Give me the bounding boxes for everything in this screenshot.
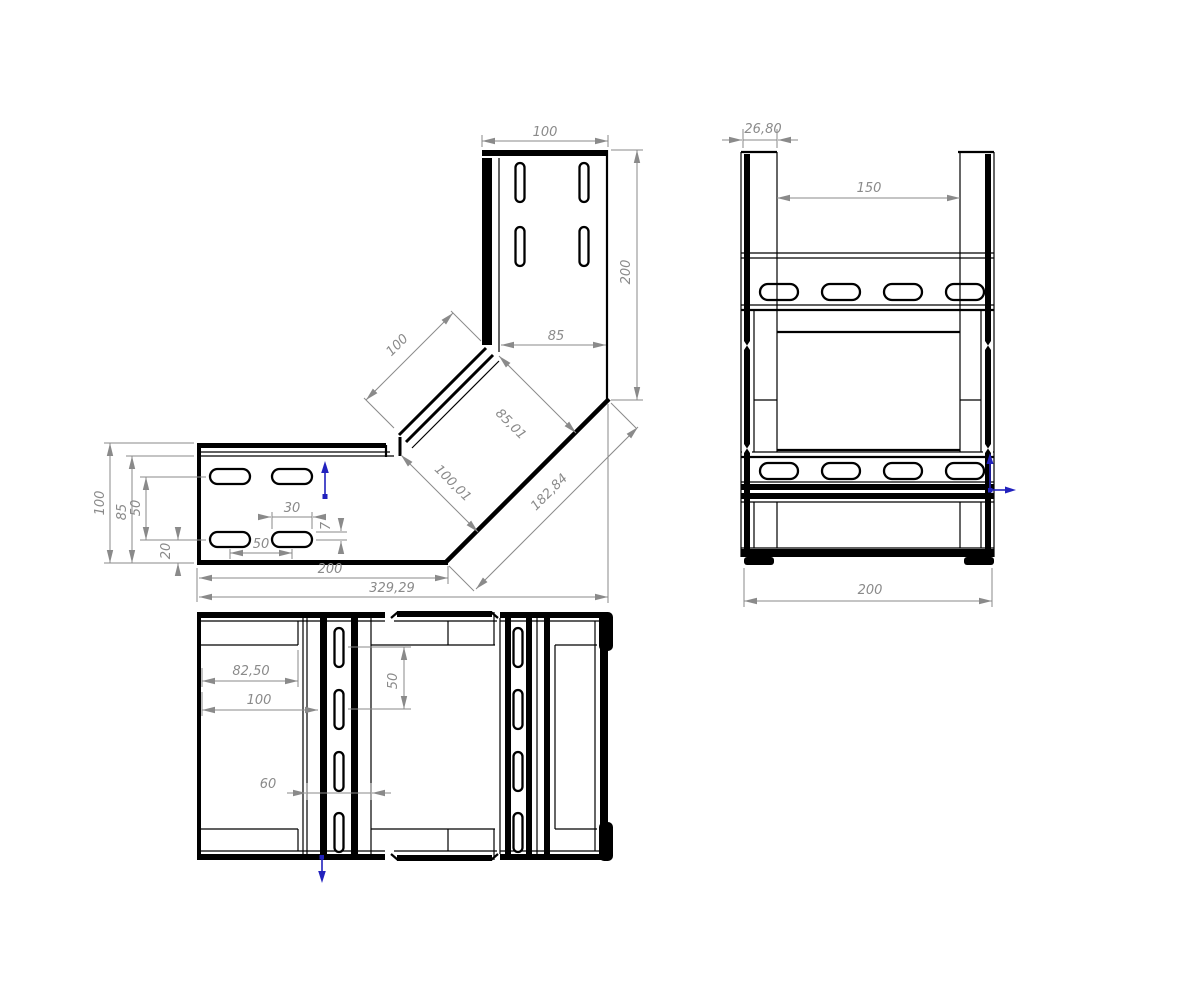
dim-front-rail-width: 26,80 (722, 122, 798, 148)
side-view-slots (210, 163, 589, 547)
slot (514, 690, 523, 729)
dim-side-slot-row-pitch: 50 (129, 477, 206, 540)
up-arrow-icon (321, 461, 329, 499)
dim-side-diag-width-outer-label: 100,01 (431, 462, 474, 505)
dim-side-diag-width-outer: 100,01 (401, 455, 478, 532)
dim-plan-band-width-label: 60 (260, 777, 277, 792)
dim-side-outer-diagonal-label: 182,84 (528, 471, 571, 514)
slot (516, 227, 525, 266)
dim-side-slot-length: 30 (258, 501, 326, 529)
slot (514, 752, 523, 791)
dim-plan-end-to-band: 100 (202, 692, 318, 716)
side-view: 100 200 85 100 85,01 100,01 (93, 125, 643, 603)
plan-view-part-outline (197, 611, 613, 861)
slot (822, 463, 860, 479)
dim-side-slot-length-label: 30 (284, 501, 301, 516)
dim-side-overall-length-label: 329,29 (369, 581, 415, 596)
dim-side-slot-bottom-offset-label: 20 (159, 543, 174, 560)
dim-side-diag-width-inner: 85,01 (492, 356, 576, 443)
front-view-part-outline (741, 152, 994, 565)
dim-side-inner-width-label: 85 (548, 329, 565, 344)
dim-front-overall-width-label: 200 (858, 583, 883, 598)
plan-view-slots (335, 628, 523, 852)
dim-front-rail-width-label: 26,80 (744, 122, 781, 137)
front-rail-joints (742, 341, 993, 453)
side-chamfer-flange (399, 348, 499, 456)
dim-side-top-width-label: 100 (533, 125, 558, 140)
dim-side-slot-offset-label: 7 (319, 521, 334, 530)
slot (514, 628, 523, 667)
slot (210, 532, 250, 547)
dim-side-diag-width-inner-label: 85,01 (492, 406, 529, 443)
dim-side-chamfer-length-label: 100 (383, 331, 411, 359)
dim-front-inner-width-label: 150 (857, 181, 882, 196)
dim-side-slot-row-pitch-label: 50 (129, 500, 144, 517)
slot (884, 463, 922, 479)
slot (760, 284, 798, 300)
dim-front-inner-width: 150 (777, 181, 960, 198)
dim-plan-end-to-fold: 82,50 (202, 650, 298, 687)
slot (822, 284, 860, 300)
slot (514, 813, 523, 852)
dim-side-slot-spacing-label: 50 (253, 537, 270, 552)
slot (272, 469, 312, 484)
slot (760, 463, 798, 479)
dim-plan-slot-row-pitch-label: 50 (386, 673, 401, 690)
slot (335, 752, 344, 791)
front-view: 26,80 150 200 (722, 122, 1016, 607)
slot (516, 163, 525, 202)
dim-side-right-height-label: 200 (619, 260, 634, 285)
slot (946, 284, 984, 300)
plan-view: 82,50 100 50 60 (197, 611, 613, 883)
dim-side-left-height-label: 100 (93, 491, 108, 516)
dim-side-left-inner-height-label: 85 (115, 504, 130, 521)
slot (335, 628, 344, 667)
dim-front-overall-width: 200 (744, 568, 992, 607)
dim-plan-end-to-fold-label: 82,50 (232, 664, 269, 679)
slot (580, 163, 589, 202)
slot (210, 469, 250, 484)
dim-plan-end-to-band-label: 100 (247, 693, 272, 708)
dim-side-outer-diagonal: 182,84 (449, 403, 638, 591)
slot (884, 284, 922, 300)
dim-side-right-height: 200 (611, 150, 643, 400)
dim-side-slot-offset: 7 (316, 519, 347, 553)
dim-side-top-width: 100 (482, 125, 608, 147)
cad-drawing-canvas: 100 200 85 100 85,01 100,01 (0, 0, 1200, 1000)
dim-side-left-inner-height: 85 (115, 456, 194, 563)
slot (946, 463, 984, 479)
slot (580, 227, 589, 266)
dim-side-inner-width: 85 (501, 329, 606, 345)
slot (272, 532, 312, 547)
dim-side-arm-length-label: 200 (318, 562, 343, 577)
slot (335, 690, 344, 729)
slot (335, 813, 344, 852)
